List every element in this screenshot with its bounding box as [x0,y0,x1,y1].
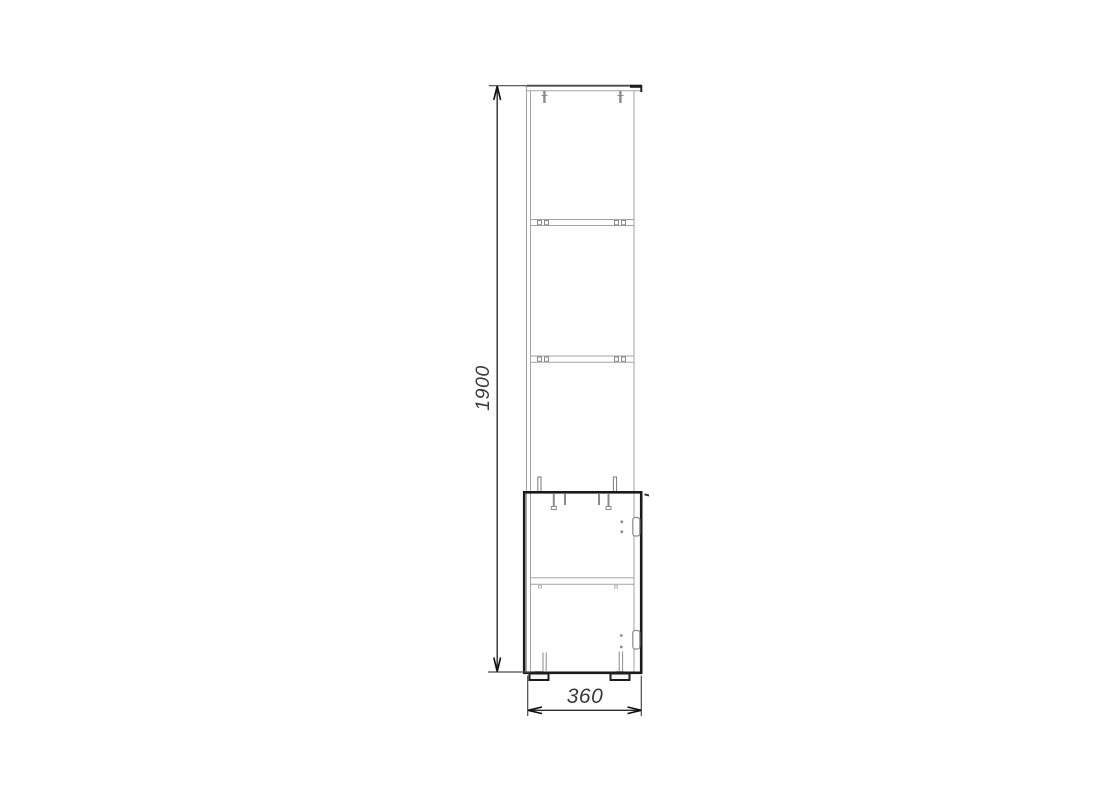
height-dimension: 1900 [472,86,531,672]
internal-shelf [531,578,635,588]
hinge-top [620,518,639,537]
foot-base-icon [530,674,549,681]
top-dowel-pins [542,91,624,103]
hinge-plate-icon [633,518,640,537]
shelf-pin-icon [539,586,542,589]
width-dimension-label: 360 [567,685,604,708]
door-top-fitting-marks [551,494,611,510]
shelf-1 [531,220,635,226]
hinge-bottom [620,631,640,650]
foot-base-icon [611,674,630,681]
shelf-pin-icon [615,357,619,361]
dowel-pin-icon [613,477,616,492]
lower-door [524,492,649,673]
hinge-screw-icon [620,634,623,637]
shelf-pin-icon [545,357,549,361]
shelf-pin-icon [615,221,619,225]
dowel-pin-icon [538,477,541,492]
door-outline [524,492,641,673]
hinge-screw-icon [620,530,623,533]
hinge-plate-icon [633,631,640,650]
shelf-pin-icon [622,357,626,361]
shelf-pin-icon [545,221,549,225]
height-dimension-label: 1900 [472,365,494,410]
hinge-screw-icon [620,520,623,523]
foot-right [611,652,630,681]
tick-mark [645,494,650,495]
drawing-canvas: 1900 360 [0,0,1120,800]
fitting-foot-icon [606,507,611,510]
cabinet-drawing-svg: 1900 360 [0,0,1120,800]
left-side-panel [527,86,531,672]
shelf-pin-icon [538,357,542,361]
shelf-pin-icon [538,221,542,225]
shelf-2 [531,356,635,362]
hinge-screw-icon [620,646,623,649]
fitting-foot-icon [551,507,556,510]
width-dimension: 360 [528,676,642,717]
shelf-pin-icon [622,221,626,225]
door-top-dowels [538,477,617,492]
cabinet [524,86,649,681]
shelf-pin-icon [615,586,618,589]
foot-left [530,653,549,681]
